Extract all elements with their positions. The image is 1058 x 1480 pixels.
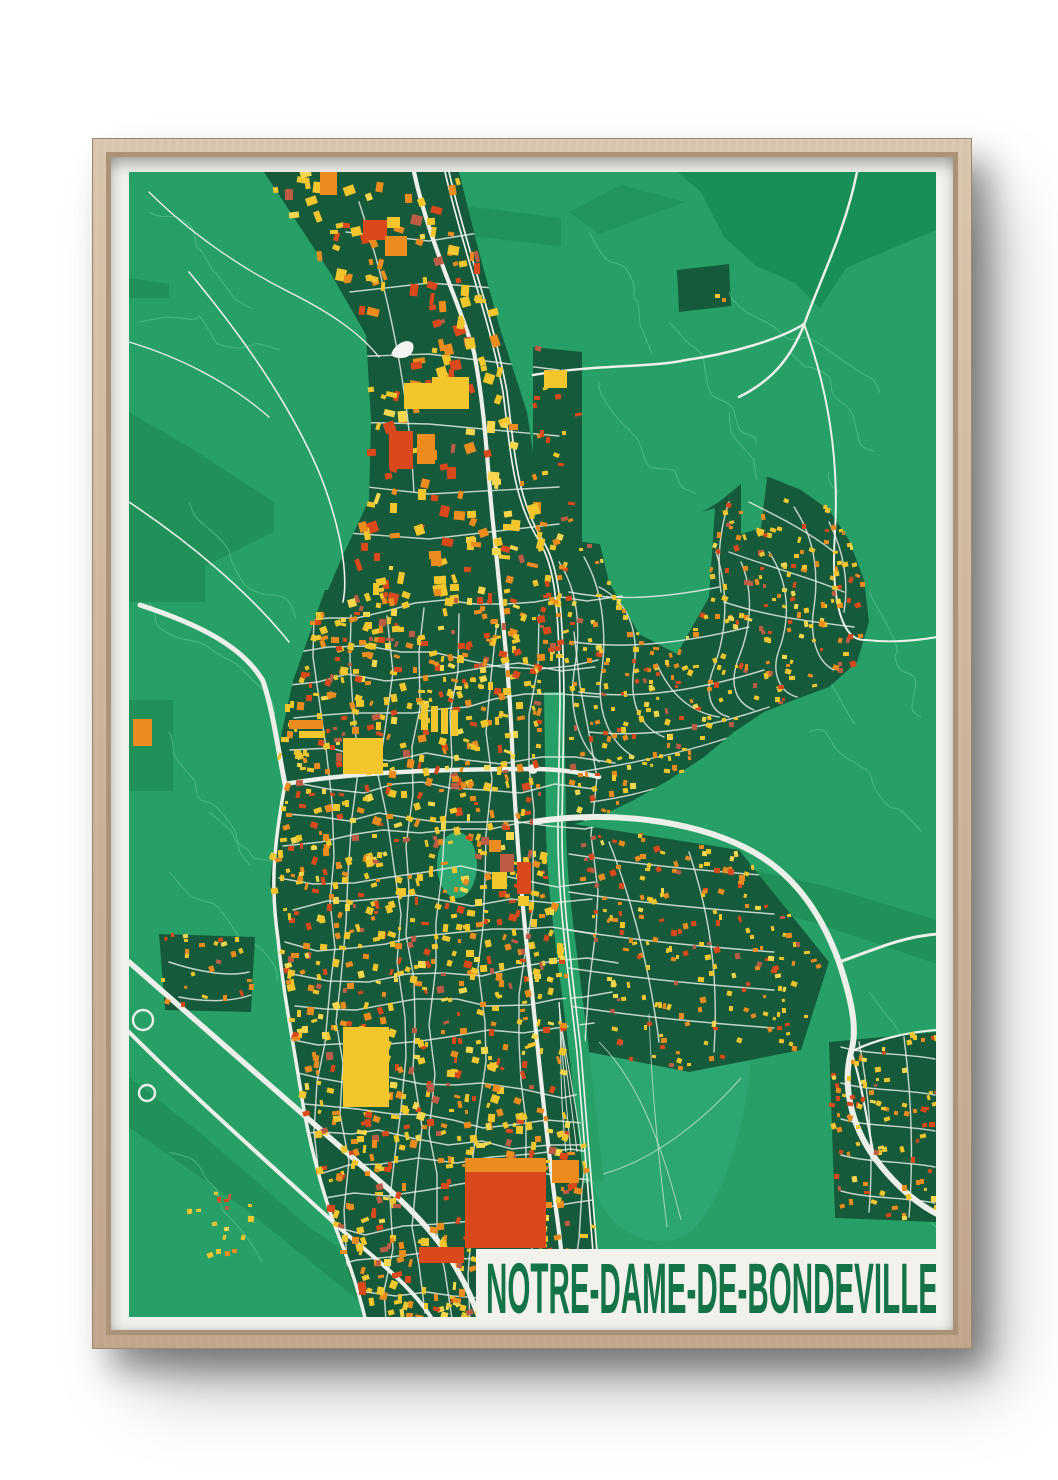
svg-text:NOTRE-DAME-DE-BONDEVILLE: NOTRE-DAME-DE-BONDEVILLE — [486, 1249, 936, 1317]
